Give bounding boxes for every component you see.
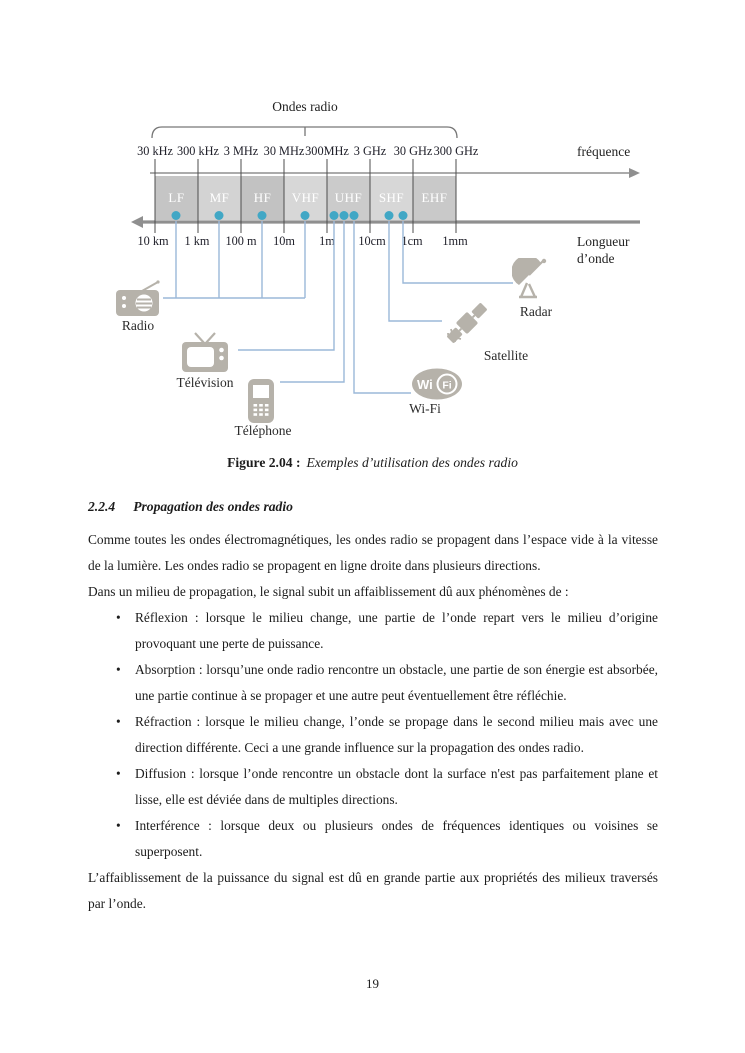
bullet-icon: • xyxy=(116,605,121,631)
page-number: 19 xyxy=(0,976,745,992)
list-item-refraction: •Réfraction : lorsque le milieu change, … xyxy=(88,709,658,761)
frequency-arrowhead-icon xyxy=(629,168,640,178)
list-item-text: Réfraction : lorsque le milieu change, l… xyxy=(135,714,658,755)
paragraph-intro: Comme toutes les ondes électromagnétique… xyxy=(88,527,658,579)
figure-ondes-radio: Ondes radio LF MF HF VHF UHF SHF EHF 30 … xyxy=(0,0,745,450)
connector-radar xyxy=(403,221,513,283)
figure-lines xyxy=(0,0,745,450)
paragraph-conclusion: L’affaiblissement de la puissance du sig… xyxy=(88,865,658,917)
figure-caption-text: Exemples d’utilisation des ondes radio xyxy=(306,455,517,470)
list-item-text: Absorption : lorsqu’une onde radio renco… xyxy=(135,662,658,703)
device-label-radar: Radar xyxy=(514,304,558,320)
television-icon xyxy=(180,331,230,373)
list-item-reflexion: •Réflexion : lorsque le milieu change, u… xyxy=(88,605,658,657)
frequency-dots xyxy=(172,211,408,220)
document-page: Ondes radio LF MF HF VHF UHF SHF EHF 30 … xyxy=(0,0,745,1053)
connector-television xyxy=(238,221,334,350)
connector-satellite xyxy=(389,221,442,321)
device-label-television: Télévision xyxy=(168,375,242,391)
device-telephone xyxy=(247,378,275,429)
device-label-wifi: Wi-Fi xyxy=(400,401,450,417)
bullet-icon: • xyxy=(116,709,121,735)
radar-icon xyxy=(512,258,556,300)
wifi-icon: Wi Fi xyxy=(411,367,463,401)
wavelength-arrowhead-icon xyxy=(131,216,143,228)
bullet-icon: • xyxy=(116,813,121,839)
list-item-absorption: •Absorption : lorsqu’une onde radio renc… xyxy=(88,657,658,709)
device-label-telephone: Téléphone xyxy=(228,423,298,439)
telephone-icon xyxy=(247,378,275,424)
bullet-icon: • xyxy=(116,761,121,787)
list-item-text: Interférence : lorsque deux ou plusieurs… xyxy=(135,818,658,859)
body-text: Comme toutes les ondes électromagnétique… xyxy=(88,527,658,917)
device-label-radio: Radio xyxy=(114,318,162,334)
phenomena-list: •Réflexion : lorsque le milieu change, u… xyxy=(88,605,658,865)
paragraph-phenomena-lead: Dans un milieu de propagation, le signal… xyxy=(88,579,658,605)
bullet-icon: • xyxy=(116,657,121,683)
figure-caption: Figure 2.04 :Exemples d’utilisation des … xyxy=(0,455,745,471)
list-item-text: Réflexion : lorsque le milieu change, un… xyxy=(135,610,658,651)
section-title: Propagation des ondes radio xyxy=(133,499,293,514)
list-item-interference: •Interférence : lorsque deux ou plusieur… xyxy=(88,813,658,865)
device-radar xyxy=(512,258,556,305)
wifi-logo-wi: Wi xyxy=(417,377,433,392)
radio-icon xyxy=(114,279,162,317)
device-label-satellite: Satellite xyxy=(475,348,537,364)
device-television xyxy=(180,331,230,378)
wifi-logo-fi: Fi xyxy=(442,380,451,392)
device-radio xyxy=(114,279,162,322)
section-heading: 2.2.4Propagation des ondes radio xyxy=(88,499,293,515)
list-item-text: Diffusion : lorsque l’onde rencontre un … xyxy=(135,766,658,807)
satellite-icon xyxy=(441,297,493,349)
section-number: 2.2.4 xyxy=(88,499,115,514)
device-satellite xyxy=(441,297,493,354)
list-item-diffusion: •Diffusion : lorsque l’onde rencontre un… xyxy=(88,761,658,813)
figure-caption-label: Figure 2.04 : xyxy=(227,455,300,470)
